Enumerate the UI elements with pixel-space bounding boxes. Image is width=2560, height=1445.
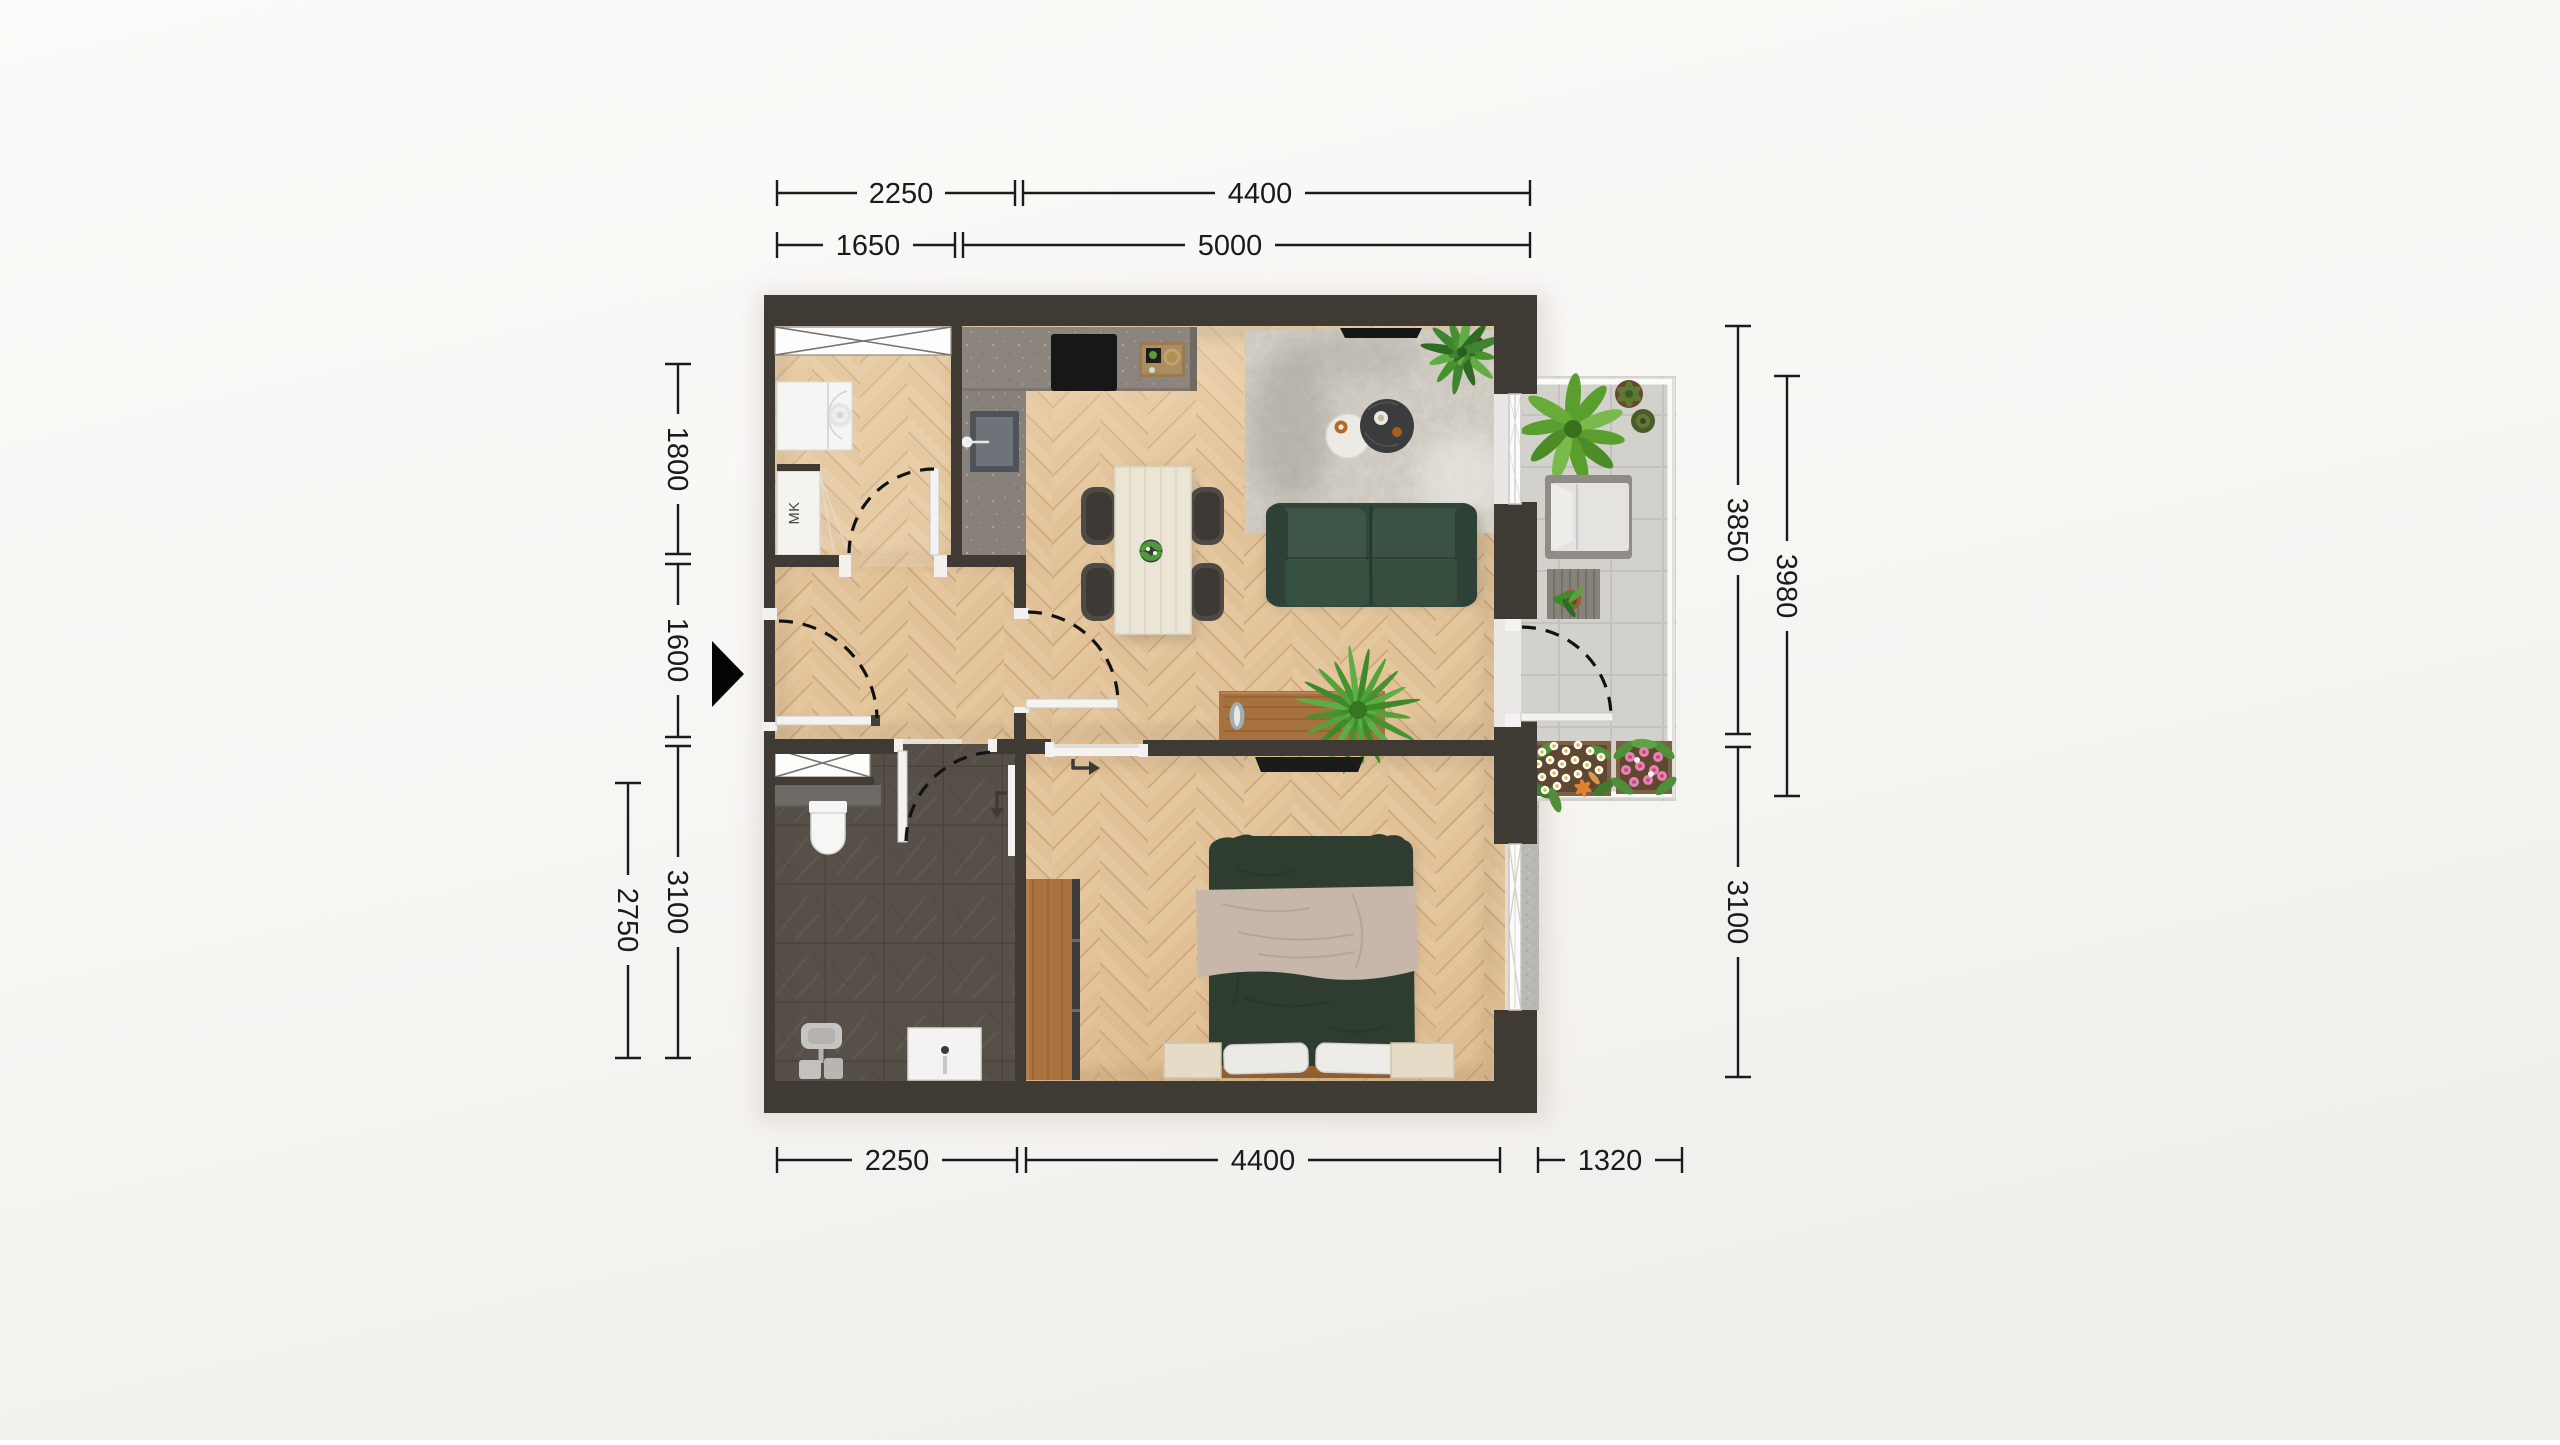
svg-text:3980: 3980 (1770, 554, 1802, 619)
svg-text:1600: 1600 (661, 618, 693, 683)
svg-text:3100: 3100 (661, 870, 693, 935)
svg-text:2250: 2250 (865, 1145, 930, 1177)
svg-text:1650: 1650 (836, 230, 901, 262)
svg-text:MK: MK (787, 502, 803, 525)
svg-text:2750: 2750 (611, 888, 643, 953)
svg-text:4400: 4400 (1228, 178, 1293, 210)
svg-text:1320: 1320 (1578, 1145, 1643, 1177)
svg-text:2250: 2250 (869, 178, 934, 210)
svg-text:5000: 5000 (1198, 230, 1263, 262)
svg-text:3850: 3850 (1721, 498, 1753, 563)
svg-text:4400: 4400 (1231, 1145, 1296, 1177)
svg-text:1800: 1800 (661, 427, 693, 492)
svg-text:3100: 3100 (1721, 880, 1753, 945)
